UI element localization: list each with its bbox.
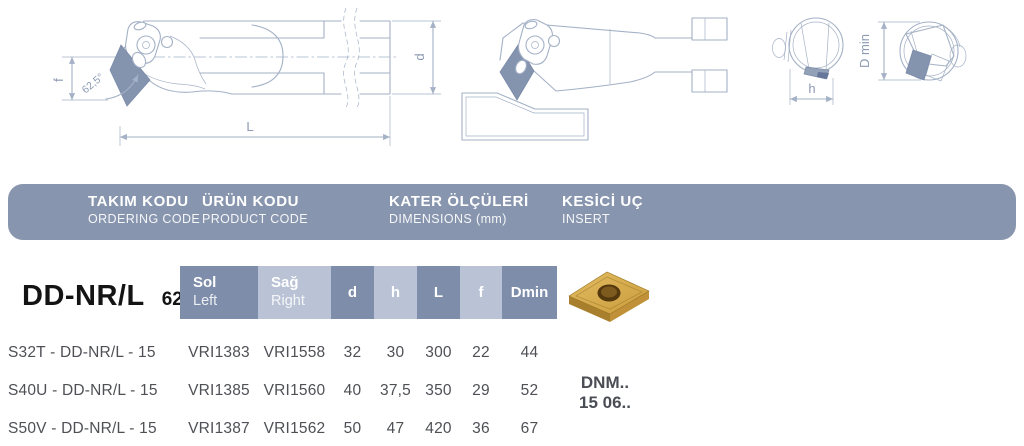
clamp-ear <box>549 36 560 47</box>
header-dimensions: KATER ÖLÇÜLERİ DIMENSIONS (mm) <box>389 193 529 226</box>
dim-d-cell: 40 <box>331 382 374 400</box>
insert-designation-line2: 15 06.. <box>557 393 653 413</box>
catalog-page: f 62,5° L d <box>0 0 1024 446</box>
col-header-tr: Sol <box>193 273 258 292</box>
header-subtitle: ORDERING CODE <box>88 212 200 226</box>
dim-h-cell: 37,5 <box>374 382 417 400</box>
technical-drawings: f 62,5° L d <box>0 0 1024 178</box>
table-header-band: TAKIM KODU ORDERING CODE ÜRÜN KODU PRODU… <box>8 184 1016 240</box>
dim-angle-label: 62,5° <box>80 71 107 96</box>
dim-f-cell: 36 <box>460 420 502 438</box>
ordering-code-cell: S50V - DD-NR/L - 15 <box>8 420 180 438</box>
header-subtitle: DIMENSIONS (mm) <box>389 212 529 226</box>
table-row: S40U - DD-NR/L - 15 VRI1385 VRI1560 40 3… <box>8 372 557 410</box>
dim-d-cell: 50 <box>331 420 374 438</box>
drawing-front-view <box>462 18 727 140</box>
col-header-dmin: Dmin <box>502 266 557 319</box>
dim-L-cell: 350 <box>417 382 460 400</box>
insert-designation: DNM.. 15 06.. <box>557 373 653 413</box>
drawing-end-view-dmin: D min <box>857 22 966 81</box>
header-subtitle: PRODUCT CODE <box>202 212 308 226</box>
clamp-screw-icon <box>526 36 544 54</box>
product-code-left-cell: VRI1383 <box>180 344 258 362</box>
drawing-end-view-h: h <box>773 18 844 105</box>
col-header-en: Left <box>193 292 258 311</box>
insert-photo <box>563 268 655 330</box>
ordering-code-cell: S32T - DD-NR/L - 15 <box>8 344 180 362</box>
product-code-left-cell: VRI1387 <box>180 420 258 438</box>
table-row: S50V - DD-NR/L - 15 VRI1387 VRI1562 50 4… <box>8 410 557 446</box>
series-name: DD-NR/L <box>22 280 145 313</box>
drawing-side-view: f 62,5° L d <box>51 8 441 146</box>
dim-L-cell: 300 <box>417 344 460 362</box>
header-product-code: ÜRÜN KODU PRODUCT CODE <box>202 193 308 226</box>
col-header-tr: Sağ <box>271 273 331 292</box>
dim-h-label: h <box>808 81 815 96</box>
product-code-left-cell: VRI1385 <box>180 382 258 400</box>
col-header-L: L <box>417 266 460 319</box>
header-subtitle: INSERT <box>562 212 643 226</box>
workpiece-outline <box>462 93 588 140</box>
col-header-left: Sol Left <box>180 266 258 319</box>
insert-designation-line1: DNM.. <box>557 373 653 393</box>
col-header-right: Sağ Right <box>258 266 331 319</box>
dim-dmin-cell: 52 <box>502 382 557 400</box>
dim-f-cell: 29 <box>460 382 502 400</box>
clamp-screw-icon <box>137 36 155 54</box>
product-code-right-cell: VRI1560 <box>258 382 331 400</box>
product-code-right-cell: VRI1558 <box>258 344 331 362</box>
header-title: ÜRÜN KODU <box>202 193 308 210</box>
col-header-d: d <box>331 266 374 319</box>
ordering-code-cell: S40U - DD-NR/L - 15 <box>8 382 180 400</box>
header-ordering-code: TAKIM KODU ORDERING CODE <box>88 193 200 226</box>
size-header-row: Sol Left Sağ Right d h L f Dmin <box>180 266 557 319</box>
dim-L-cell: 420 <box>417 420 460 438</box>
series-label: DD-NR/L 62,5° <box>22 280 206 313</box>
dim-d-label: d <box>412 53 427 60</box>
table-row: S32T - DD-NR/L - 15 VRI1383 VRI1558 32 3… <box>8 334 557 372</box>
dim-dmin-label: D min <box>857 34 872 68</box>
dim-dmin-cell: 67 <box>502 420 557 438</box>
header-title: TAKIM KODU <box>88 193 200 210</box>
dim-h-cell: 47 <box>374 420 417 438</box>
header-title: KESİCİ UÇ <box>562 193 643 210</box>
dim-d-cell: 32 <box>331 344 374 362</box>
col-header-f: f <box>460 266 502 319</box>
clamp-ear <box>162 37 173 48</box>
dim-f-cell: 22 <box>460 344 502 362</box>
header-title: KATER ÖLÇÜLERİ <box>389 193 529 210</box>
product-code-right-cell: VRI1562 <box>258 420 331 438</box>
dim-h-cell: 30 <box>374 344 417 362</box>
col-header-h: h <box>374 266 417 319</box>
header-insert: KESİCİ UÇ INSERT <box>562 193 643 226</box>
dim-dmin-cell: 44 <box>502 344 557 362</box>
dim-f-label: f <box>51 78 66 82</box>
dim-L-label: L <box>246 119 253 134</box>
col-header-en: Right <box>271 292 331 311</box>
